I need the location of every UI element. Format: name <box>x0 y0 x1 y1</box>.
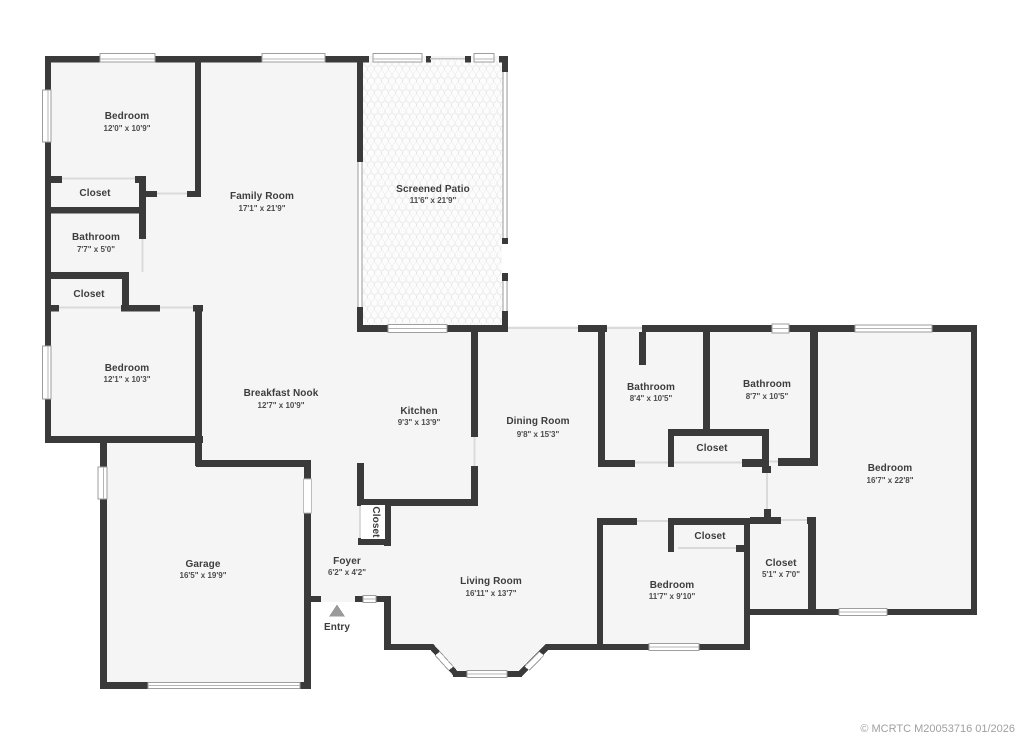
svg-text:© MCRTC M20053716 01/2026: © MCRTC M20053716 01/2026 <box>860 723 1015 735</box>
svg-text:Bathroom: Bathroom <box>627 382 675 393</box>
svg-text:Closet: Closet <box>73 289 105 300</box>
svg-text:9'8" x 15'3": 9'8" x 15'3" <box>517 430 560 439</box>
svg-text:17'1" x 21'9": 17'1" x 21'9" <box>239 204 286 213</box>
svg-text:Bathroom: Bathroom <box>72 232 120 243</box>
svg-text:Dining Room: Dining Room <box>506 416 569 427</box>
svg-text:16'5" x 19'9": 16'5" x 19'9" <box>180 571 227 580</box>
svg-text:8'4" x 10'5": 8'4" x 10'5" <box>630 394 673 403</box>
svg-text:12'1" x 10'3": 12'1" x 10'3" <box>104 375 151 384</box>
svg-text:16'7" x 22'8": 16'7" x 22'8" <box>867 476 914 485</box>
svg-text:Bedroom: Bedroom <box>650 580 695 591</box>
svg-text:16'11" x 13'7": 16'11" x 13'7" <box>466 589 517 598</box>
svg-text:Breakfast Nook: Breakfast Nook <box>244 388 319 399</box>
svg-text:Bedroom: Bedroom <box>105 111 150 122</box>
svg-text:12'7" x 10'9": 12'7" x 10'9" <box>258 401 305 410</box>
svg-text:5'1" x 7'0": 5'1" x 7'0" <box>762 570 800 579</box>
svg-text:9'3" x 13'9": 9'3" x 13'9" <box>398 418 441 427</box>
svg-text:Bathroom: Bathroom <box>743 379 791 390</box>
svg-text:Bedroom: Bedroom <box>105 363 150 374</box>
svg-text:Living Room: Living Room <box>460 576 522 587</box>
svg-text:Closet: Closet <box>694 531 726 542</box>
svg-text:Entry: Entry <box>324 622 350 633</box>
svg-text:Closet: Closet <box>79 188 111 199</box>
svg-text:Garage: Garage <box>185 559 220 570</box>
svg-text:Screened Patio: Screened Patio <box>396 184 470 195</box>
svg-text:8'7" x 10'5": 8'7" x 10'5" <box>746 392 789 401</box>
svg-text:12'0" x 10'9": 12'0" x 10'9" <box>104 124 151 133</box>
svg-text:Closet: Closet <box>765 558 797 569</box>
svg-text:Closet: Closet <box>370 506 381 538</box>
svg-text:Closet: Closet <box>696 443 728 454</box>
svg-text:7'7" x 5'0": 7'7" x 5'0" <box>77 245 115 254</box>
svg-text:Kitchen: Kitchen <box>400 406 437 417</box>
svg-text:11'6" x 21'9": 11'6" x 21'9" <box>410 196 457 205</box>
svg-text:6'2" x 4'2": 6'2" x 4'2" <box>328 568 366 577</box>
svg-text:11'7" x 9'10": 11'7" x 9'10" <box>649 592 696 601</box>
svg-text:Bedroom: Bedroom <box>868 463 913 474</box>
svg-text:Foyer: Foyer <box>333 556 361 567</box>
svg-text:Family Room: Family Room <box>230 191 294 202</box>
